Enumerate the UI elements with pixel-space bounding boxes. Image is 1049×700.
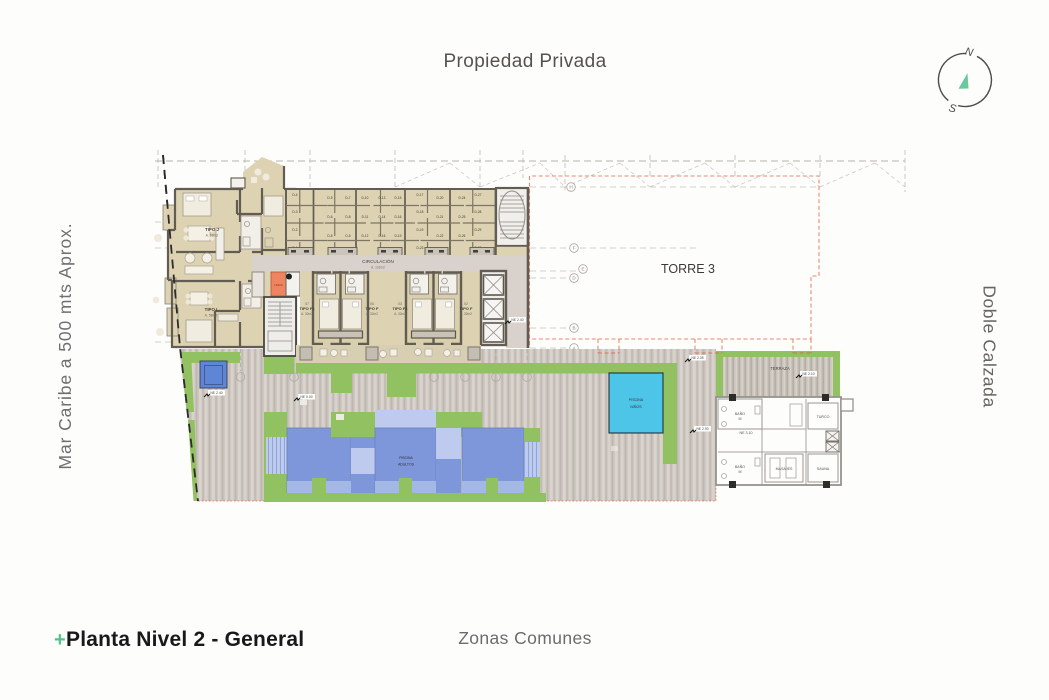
svg-text:D-8: D-8 bbox=[345, 215, 350, 219]
svg-text:D-3: D-3 bbox=[292, 210, 297, 214]
svg-text:TIPO F1: TIPO F1 bbox=[299, 306, 315, 311]
svg-text:Planta Nivel 2 - General: Planta Nivel 2 - General bbox=[66, 628, 304, 651]
svg-text:TURCO: TURCO bbox=[817, 415, 830, 419]
svg-text:D-4: D-4 bbox=[292, 193, 297, 197]
svg-text:ADULTOS: ADULTOS bbox=[398, 463, 414, 467]
svg-text:TIPO F1: TIPO F1 bbox=[392, 306, 408, 311]
svg-text:LINOS: LINOS bbox=[274, 283, 283, 287]
svg-text:A. 32m2: A. 32m2 bbox=[394, 312, 406, 316]
svg-text:D-9: D-9 bbox=[327, 196, 332, 200]
svg-text:TIPO F: TIPO F bbox=[460, 306, 473, 311]
svg-text:+: + bbox=[54, 629, 66, 651]
svg-text:A. 98m2: A. 98m2 bbox=[206, 234, 219, 238]
svg-text:PISCINA: PISCINA bbox=[399, 456, 413, 460]
svg-text:Doble Calzada: Doble Calzada bbox=[980, 285, 1000, 408]
svg-text:D-2: D-2 bbox=[292, 228, 297, 232]
svg-text:D-19: D-19 bbox=[417, 228, 424, 232]
svg-text:D-28: D-28 bbox=[475, 210, 482, 214]
svg-text:NE 0.00: NE 0.00 bbox=[300, 395, 312, 399]
svg-text:D-21: D-21 bbox=[437, 215, 444, 219]
svg-text:D-14: D-14 bbox=[379, 215, 386, 219]
svg-text:F: F bbox=[573, 246, 576, 251]
svg-text:Propiedad Privada: Propiedad Privada bbox=[443, 51, 606, 72]
svg-text:SAUNA: SAUNA bbox=[817, 467, 830, 471]
svg-text:NE 2.40: NE 2.40 bbox=[511, 318, 523, 322]
svg-text:D-20: D-20 bbox=[437, 196, 444, 200]
svg-text:D-26: D-26 bbox=[459, 234, 466, 238]
svg-text:A. 32m2: A. 32m2 bbox=[301, 312, 313, 316]
svg-text:D-7: D-7 bbox=[345, 196, 350, 200]
svg-text:A. 58m2: A. 58m2 bbox=[205, 314, 218, 318]
svg-text:PISCINA: PISCINA bbox=[629, 398, 644, 402]
svg-text:D-16: D-16 bbox=[395, 215, 402, 219]
svg-text:D-24: D-24 bbox=[459, 196, 466, 200]
svg-text:E: E bbox=[581, 267, 584, 272]
svg-text:D-12: D-12 bbox=[362, 234, 369, 238]
svg-text:D-6: D-6 bbox=[327, 215, 332, 219]
svg-text:D-11: D-11 bbox=[362, 215, 369, 219]
svg-text:TIPO F: TIPO F bbox=[366, 306, 379, 311]
svg-text:TIPO J: TIPO J bbox=[205, 227, 219, 232]
svg-text:D-5: D-5 bbox=[345, 234, 350, 238]
svg-text:Mar Caribe a 500 mts Aprox.: Mar Caribe a 500 mts Aprox. bbox=[55, 222, 75, 469]
svg-text:NE 3.10: NE 3.10 bbox=[740, 431, 753, 435]
svg-text:A. 32m2: A. 32m2 bbox=[366, 312, 378, 316]
svg-text:A. 32m2: A. 32m2 bbox=[460, 312, 472, 316]
svg-text:D-19: D-19 bbox=[395, 234, 402, 238]
svg-text:H: H bbox=[569, 185, 572, 190]
svg-text:B: B bbox=[572, 326, 575, 331]
svg-text:M: M bbox=[739, 417, 742, 421]
svg-text:NE 2.10: NE 2.10 bbox=[802, 372, 814, 376]
svg-text:D-18: D-18 bbox=[417, 210, 424, 214]
svg-text:BAÑO: BAÑO bbox=[735, 411, 745, 416]
svg-text:BAÑO: BAÑO bbox=[735, 464, 745, 469]
svg-text:D-15: D-15 bbox=[395, 196, 402, 200]
svg-text:D-13: D-13 bbox=[379, 196, 386, 200]
svg-text:MASAJES: MASAJES bbox=[776, 467, 793, 471]
svg-text:TORRE 3: TORRE 3 bbox=[661, 262, 715, 276]
svg-text:D-22: D-22 bbox=[437, 234, 444, 238]
svg-text:D-25: D-25 bbox=[459, 215, 466, 219]
svg-text:D-16: D-16 bbox=[379, 234, 386, 238]
svg-text:NIÑOS: NIÑOS bbox=[630, 404, 642, 409]
svg-text:D-5: D-5 bbox=[327, 234, 332, 238]
svg-text:D-27: D-27 bbox=[475, 193, 482, 197]
svg-text:D-29: D-29 bbox=[475, 228, 482, 232]
svg-text:D-17: D-17 bbox=[417, 193, 424, 197]
svg-text:D-10: D-10 bbox=[362, 196, 369, 200]
svg-text:TIPO I: TIPO I bbox=[205, 307, 218, 312]
svg-text:D-23: D-23 bbox=[417, 246, 424, 250]
svg-text:CIRCULACIÓN: CIRCULACIÓN bbox=[362, 258, 394, 264]
svg-text:NE 2.05: NE 2.05 bbox=[691, 356, 703, 360]
svg-text:Zonas Comunes: Zonas Comunes bbox=[458, 628, 592, 648]
svg-text:TERRAZA: TERRAZA bbox=[770, 366, 790, 371]
svg-text:A. 101m2: A. 101m2 bbox=[371, 266, 385, 270]
svg-text:M: M bbox=[739, 470, 742, 474]
svg-text:NE 2.40: NE 2.40 bbox=[210, 391, 222, 395]
svg-text:NE 2.90: NE 2.90 bbox=[696, 427, 708, 431]
